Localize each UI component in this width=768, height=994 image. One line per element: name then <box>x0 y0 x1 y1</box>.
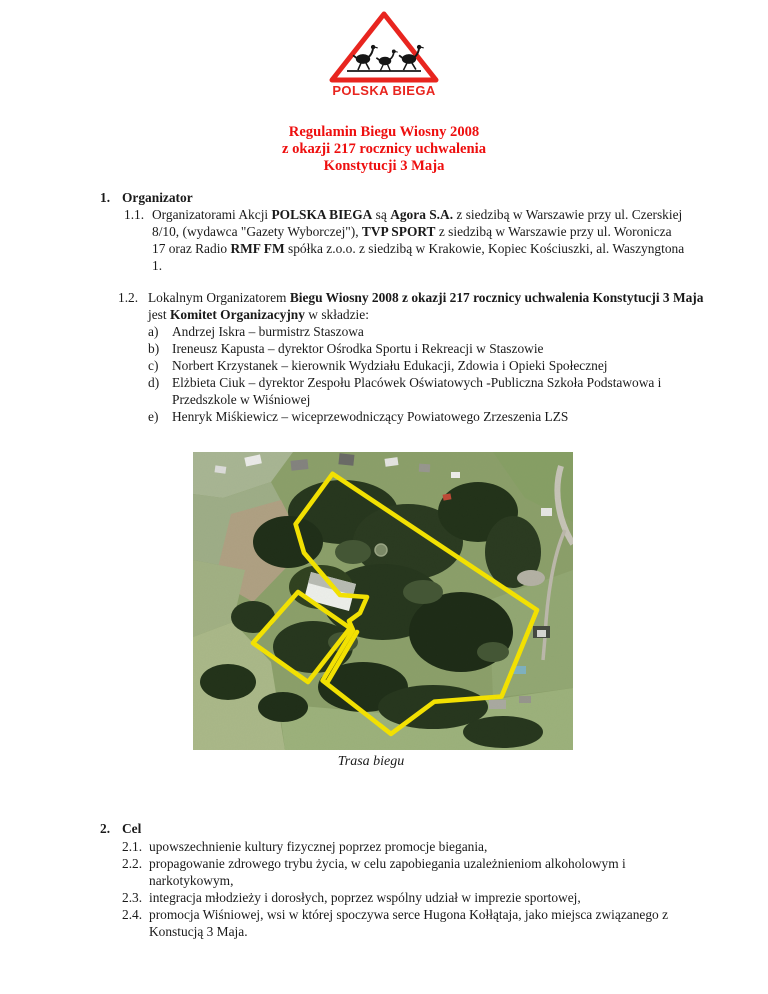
paragraph-1-2-number: 1.2. <box>118 289 148 306</box>
list-item-c: c)Norbert Krzystanek – kierownik Wydział… <box>148 357 672 374</box>
polska-biega-logo <box>325 10 443 84</box>
list-marker: d) <box>148 374 172 391</box>
document-title: Regulamin Biegu Wiosny 2008 z okazji 217… <box>0 124 768 175</box>
section-1-number: 1. <box>100 189 122 206</box>
title-line-1: Regulamin Biegu Wiosny 2008 <box>0 124 768 141</box>
item-marker: 2.3. <box>122 889 149 906</box>
polska-biega-logo-icon <box>325 10 443 84</box>
document-page: POLSKA BIEGA Regulamin Biegu Wiosny 2008… <box>0 0 768 994</box>
section-2-title: Cel <box>122 821 141 836</box>
text-run: Organizatorami Akcji <box>152 207 272 222</box>
paragraph-1-1-number: 1.1. <box>124 206 152 223</box>
text-run: w składzie: <box>305 307 369 322</box>
text-run: są <box>372 207 390 222</box>
text-run-bold: TVP SPORT <box>362 224 436 239</box>
text-run-bold: Biegu Wiosny 2008 z okazji 217 rocznicy … <box>290 290 704 305</box>
goal-item-2-2: 2.2.propagowanie zdrowego trybu życia, w… <box>122 855 694 889</box>
section-2-number: 2. <box>100 820 122 837</box>
list-item-b: b)Ireneusz Kapusta – dyrektor Ośrodka Sp… <box>148 340 672 357</box>
item-text: upowszechnienie kultury fizycznej poprze… <box>149 839 487 854</box>
aerial-photo-graphic <box>193 452 573 750</box>
item-marker: 2.4. <box>122 906 149 923</box>
list-text: Ireneusz Kapusta – dyrektor Ośrodka Spor… <box>172 341 544 356</box>
goal-item-2-4: 2.4.promocja Wiśniowej, wsi w której spo… <box>122 906 694 940</box>
text-run-bold: Agora S.A. <box>390 207 453 222</box>
list-marker: b) <box>148 340 172 357</box>
item-text: promocja Wiśniowej, wsi w której spoczyw… <box>149 907 668 939</box>
text-run: jest <box>148 307 170 322</box>
list-text: Norbert Krzystanek – kierownik Wydziału … <box>172 358 608 373</box>
list-text: Elżbieta Ciuk – dyrektor Zespołu Placówe… <box>172 375 661 407</box>
item-text: integracja młodzieży i dorosłych, poprze… <box>149 890 581 905</box>
list-marker: e) <box>148 408 172 425</box>
text-run: Lokalnym Organizatorem <box>148 290 290 305</box>
goal-item-2-3: 2.3.integracja młodzieży i dorosłych, po… <box>122 889 694 906</box>
logo-label: POLSKA BIEGA <box>284 82 484 99</box>
section-2-items: 2.1.upowszechnienie kultury fizycznej po… <box>122 838 694 940</box>
paragraph-1-1: 1.1.Organizatorami Akcji POLSKA BIEGA są… <box>124 206 685 274</box>
list-text: Andrzej Iskra – burmistrz Staszowa <box>172 324 364 339</box>
section-1-heading: 1.Organizator <box>100 189 193 206</box>
section-2-heading: 2.Cel <box>100 820 141 837</box>
list-item-d: d)Elżbieta Ciuk – dyrektor Zespołu Placó… <box>148 374 672 408</box>
goal-item-2-1: 2.1.upowszechnienie kultury fizycznej po… <box>122 838 694 855</box>
list-text: Henryk Miśkiewicz – wiceprzewodniczący P… <box>172 409 568 424</box>
title-line-2: z okazji 217 rocznicy uchwalenia <box>0 141 768 158</box>
aerial-photo-trasa-biegu <box>193 452 573 750</box>
text-run-bold: Komitet Organizacyjny <box>170 307 305 322</box>
section-1-title: Organizator <box>122 190 193 205</box>
item-text: propagowanie zdrowego trybu życia, w cel… <box>149 856 626 888</box>
title-line-3: Konstytucji 3 Maja <box>0 158 768 175</box>
item-marker: 2.2. <box>122 855 149 872</box>
text-run-bold: POLSKA BIEGA <box>272 207 373 222</box>
committee-list: a)Andrzej Iskra – burmistrz Staszowa b)I… <box>148 323 672 425</box>
list-item-a: a)Andrzej Iskra – burmistrz Staszowa <box>148 323 672 340</box>
item-marker: 2.1. <box>122 838 149 855</box>
text-run-bold: RMF FM <box>230 241 284 256</box>
list-item-e: e)Henryk Miśkiewicz – wiceprzewodniczący… <box>148 408 672 425</box>
figure-caption: Trasa biegu <box>181 753 561 770</box>
list-marker: c) <box>148 357 172 374</box>
paragraph-1-2: 1.2.Lokalnym Organizatorem Biegu Wiosny … <box>118 289 704 323</box>
list-marker: a) <box>148 323 172 340</box>
